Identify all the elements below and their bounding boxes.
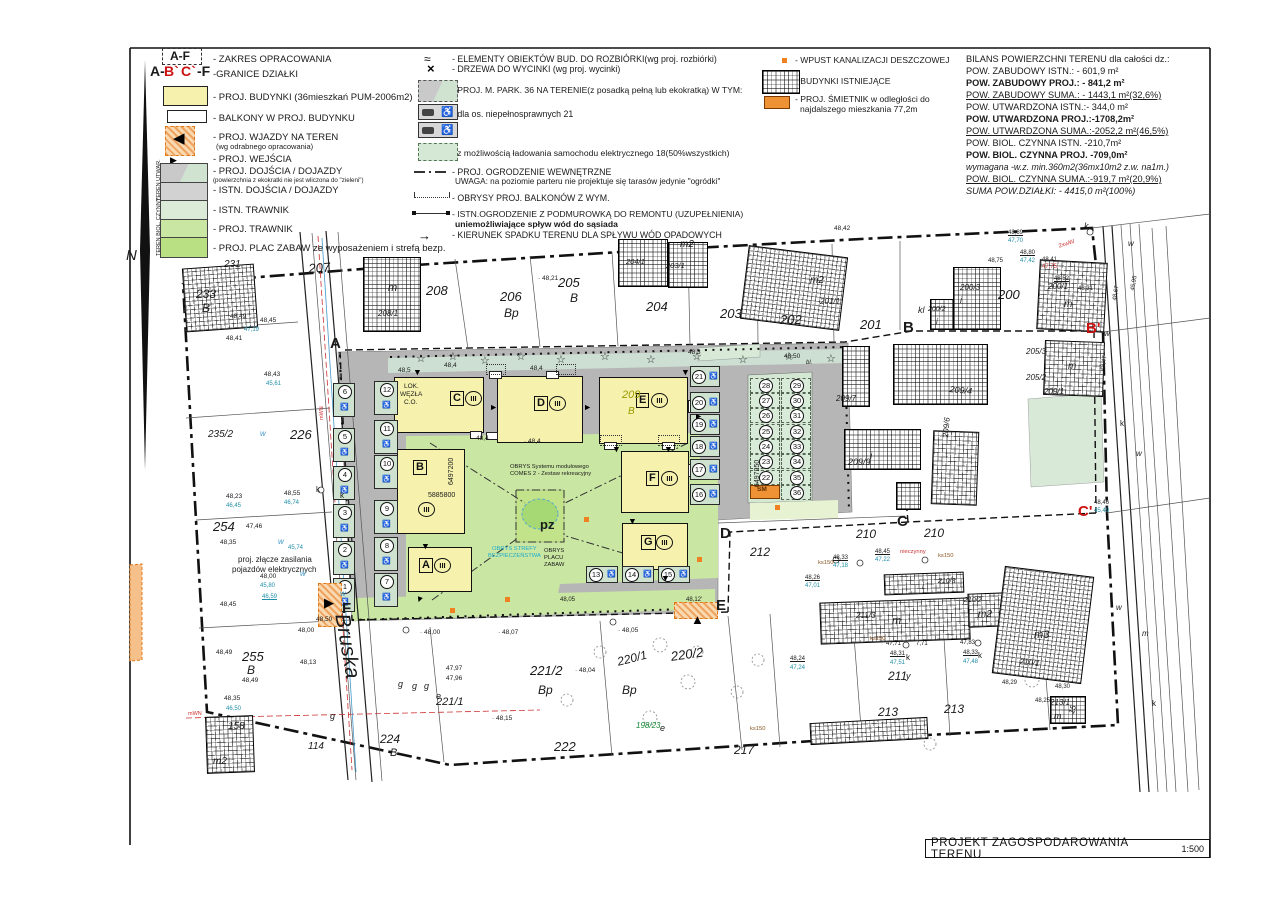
tree-star-icon: ☆ [738, 355, 748, 366]
parking-number: 10 [380, 457, 394, 471]
parking-number: 36 [790, 486, 804, 500]
map-label: m [388, 283, 397, 295]
balance-row: wymagana -w.z. min.360m2(36mx10m2 z.w. n… [966, 163, 1169, 172]
map-label: 6497250 [754, 460, 761, 487]
boundary-marker: A [330, 336, 341, 352]
tree-star-icon: ☆ [416, 354, 426, 365]
map-label: 48,5 [398, 368, 411, 375]
map-label: mWN [320, 406, 326, 420]
map-label: 48,25 [1035, 698, 1050, 704]
map-label: Bp [622, 684, 637, 697]
map-label: Bp [504, 307, 519, 320]
map-label: 221/2 [530, 664, 563, 678]
wheelchair-icon: ♿ [709, 398, 718, 406]
map-label: 48,31 [1078, 286, 1093, 292]
door-arrow-icon: ▲ [414, 594, 425, 606]
map-label: 48,46 [1094, 500, 1109, 506]
map-label: i [922, 582, 924, 591]
map-label: 205 [558, 276, 580, 290]
map-label: 48,41 [226, 336, 242, 343]
building-B-label: B [413, 460, 427, 475]
wheelchair-icon: ♿ [709, 465, 718, 473]
parking-number: 24 [759, 440, 773, 454]
map-label: m [1054, 712, 1062, 721]
map-label: m2 [810, 276, 824, 287]
map-label: 48,12' [686, 597, 702, 603]
storm-drain-icon [584, 517, 589, 522]
map-label: ks150 [870, 636, 885, 642]
map-label: B [247, 664, 255, 677]
map-label: 48,50 [316, 617, 332, 624]
map-label: y [906, 672, 911, 681]
map-label: 203/1 [666, 262, 685, 270]
map-label: 46,45 [226, 503, 241, 509]
map-label: 213/1 [1050, 699, 1070, 707]
map-label: COMES 2 - Zestaw rekreacyjny [510, 471, 591, 477]
map-label: 48,35 [224, 696, 240, 703]
map-label: m2 [213, 757, 227, 768]
building-B-floors: III [418, 502, 435, 517]
door-arrow-icon: ▲ [612, 445, 621, 454]
map-label: ks150 [750, 726, 765, 732]
map-label: 48,4 [530, 366, 543, 373]
map-label: m [892, 616, 901, 628]
map-label: 48,45 [220, 602, 236, 609]
map-label: 48,33 [833, 555, 848, 561]
map-label: 5885800 [428, 492, 455, 499]
map-label: 48,4 [444, 363, 457, 370]
map-label: SM [757, 487, 767, 494]
map-label: 7,71 [916, 641, 928, 647]
map-label: 213 [944, 703, 964, 716]
map-label: 46,50 [226, 706, 241, 712]
parking-number: 4 [338, 468, 352, 482]
building-A-floors: III [434, 558, 451, 573]
map-label: m [1068, 362, 1076, 373]
map-label: B [202, 302, 210, 315]
map-label: k [340, 492, 344, 500]
map-label: · 48,21 [538, 276, 558, 283]
map-label: 48,31 [890, 651, 905, 657]
balance-row: POW. ZABUDOWY SUMA.: - 1443,1 m²(32,6%) [966, 91, 1161, 101]
building-D-label: D [534, 396, 548, 411]
title-block: PROJEKT ZAGOSPODAROWANIA TERENU 1:500 [925, 839, 1210, 858]
legend-label: - KIERUNEK SPADKU TERENU DLA SPŁYWU WÓD … [452, 231, 722, 240]
map-label: 46,59 [262, 594, 277, 600]
map-label: 48,55 [284, 491, 300, 498]
parking-number: 26 [759, 409, 773, 423]
parking-number: 27 [759, 394, 773, 408]
map-label: 48,49 [242, 678, 258, 685]
map-label: 220/2 [670, 645, 704, 663]
map-label: g [330, 712, 335, 721]
building-G-floors: III [656, 535, 673, 550]
balance-row: POW. UTWARDZONA PROJ.:-1708,2m² [966, 115, 1134, 125]
wheelchair-icon: ♿ [382, 557, 391, 565]
wheelchair-icon: ♿ [382, 475, 391, 483]
map-label: k [1152, 700, 1156, 708]
wheelchair-icon: ♿ [340, 561, 349, 569]
map-label: 211/3 [856, 612, 875, 620]
building-G-label: G [641, 535, 656, 550]
wheelchair-icon: ♿ [709, 490, 718, 498]
map-label: m [1064, 300, 1072, 311]
legend-label: - PROJ. PLAC ZABAW ze wyposażeniem i str… [213, 244, 445, 254]
map-label: g [398, 680, 403, 689]
map-label: 48,45 [875, 549, 890, 555]
map-label: 47,51 [890, 660, 905, 666]
map-label: 48,33 [963, 650, 978, 656]
map-label: w [340, 590, 346, 598]
wheelchair-icon: ♿ [607, 570, 616, 578]
parking-number: 17 [692, 463, 706, 477]
map-label: w [300, 570, 306, 578]
slope-icon: → [418, 228, 430, 240]
parking-number: 2 [338, 543, 352, 557]
map-label: k [1120, 420, 1124, 428]
boundary-marker: B' [1086, 321, 1100, 337]
parking-number: 35 [790, 471, 804, 485]
map-label: e [660, 724, 665, 733]
balance-row: SUMA POW.DZIAŁKI: - 4415,0 m²(100%) [966, 187, 1135, 197]
boundary-marker: D [720, 526, 731, 542]
map-label: 48,47 [1100, 355, 1109, 371]
map-label: w [278, 538, 284, 546]
parking-number: 28 [759, 379, 773, 393]
site-plan-page: CIIIDIIIEIIIBIIIFIIIAIIIGIII1♿2♿3♿4♿5♿6♿… [0, 0, 1280, 905]
parking-number: 9 [380, 502, 394, 516]
wheelchair-icon: ♿ [340, 524, 349, 532]
map-label: 45,74 [288, 545, 303, 551]
map-label: · 48,4 [524, 439, 541, 446]
building-F-floors: III [661, 471, 678, 486]
map-label: B [628, 407, 635, 418]
tree-star-icon: ☆ [516, 352, 526, 363]
map-label: 47,46 [246, 524, 262, 531]
map-label: 208 [426, 284, 448, 298]
balance-row: POW. BIOL. CZYNNA PROJ. -709,0m² [966, 151, 1128, 161]
map-label: 48,45 [260, 318, 276, 325]
building-E-floors: III [651, 393, 668, 408]
map-label: g [412, 682, 417, 691]
parking-number: 18 [692, 440, 706, 454]
map-label: 202 [780, 313, 802, 327]
legend-label: uniemożliwiające spływ wód do sąsiada [455, 220, 618, 229]
wheelchair-icon: ♿ [643, 570, 652, 578]
door-arrow-icon: ▲ [413, 368, 422, 377]
map-label: mWN [188, 712, 202, 718]
map-label: · 48,04 [575, 668, 595, 675]
map-label: proj. złącze zasilania [238, 556, 312, 564]
map-label: 226 [290, 428, 312, 442]
existing-building [810, 717, 929, 745]
drawing-title: PROJEKT ZAGOSPODAROWANIA TERENU [931, 837, 1181, 861]
door-arrow-icon: ▲ [661, 574, 670, 583]
wheelchair-icon: ♿ [679, 570, 688, 578]
parking-number: 34 [790, 455, 804, 469]
map-label: 201 [860, 318, 882, 332]
door-arrow-icon: ▲ [583, 403, 592, 412]
wheelchair-icon: ♿ [340, 448, 349, 456]
parking-number: 30 [790, 394, 804, 408]
parking-number: 25 [759, 425, 773, 439]
wheelchair-icon: ♿ [382, 401, 391, 409]
door-arrow-icon: ▲ [489, 403, 498, 412]
map-label: w [1136, 450, 1142, 458]
existing-building [992, 566, 1094, 684]
building-C-label: C [450, 391, 464, 406]
entrance-arrow-icon: ▶ [324, 598, 334, 607]
map-label: 254 [213, 520, 235, 534]
boundary-marker: B [903, 320, 914, 336]
map-label: 114 [308, 742, 324, 753]
building-A-label: A [419, 558, 433, 573]
map-label: w [1116, 604, 1122, 612]
balance-row: POW. UTWARDZONA SUMA.:-2052,2 m²(46,5%) [966, 127, 1168, 137]
map-label: 204 [646, 300, 668, 314]
map-label: 47,22 [875, 557, 890, 563]
map-label: · 48,05 [618, 628, 638, 635]
tree-star-icon: ☆ [646, 355, 656, 366]
door-arrow-icon: ▲ [664, 445, 673, 454]
parking-number: 8 [380, 539, 394, 553]
map-label: bl. [806, 360, 812, 366]
map-label: 213 [878, 706, 898, 719]
entrance-gate: ▲ [674, 602, 718, 619]
tree-star-icon: ☆ [556, 355, 566, 366]
existing-building [931, 430, 980, 506]
map-label: i [960, 296, 962, 305]
parking-number: 29 [790, 379, 804, 393]
map-label: OBRYS STREFY [492, 546, 537, 552]
balance-row: POW. BIOL. CZYNNA SUMA.:-919,7 m²(20,9%) [966, 175, 1162, 185]
map-label: m3 [1034, 630, 1049, 642]
map-label: 217 [734, 744, 754, 757]
balance-row: POW. ZABUDOWY PROJ.: - 841,2 m² [966, 79, 1125, 89]
door-arrow-icon: ▲ [694, 412, 703, 421]
wheelchair-icon: ♿ [382, 520, 391, 528]
map-label: 200/1 [1048, 283, 1068, 291]
map-label: 198/23 [636, 722, 660, 730]
tree-star-icon: ☆ [600, 352, 610, 363]
map-label: 255 [242, 650, 264, 664]
existing-building [893, 344, 988, 405]
map-label: g [424, 682, 429, 691]
map-label: 47,48 [963, 659, 978, 665]
map-label: 47,19 [244, 327, 259, 333]
map-label: nieczynny [900, 549, 926, 555]
map-label: 210 [924, 527, 944, 540]
wheelchair-icon: ♿ [382, 593, 391, 601]
map-label: 48,30 [1055, 684, 1070, 690]
storm-drain-icon [505, 597, 510, 602]
map-label: 220/1 [616, 649, 648, 668]
map-label: B [390, 748, 397, 760]
building-E [599, 377, 688, 444]
map-label: 207 [308, 260, 331, 275]
map-label: 210 [856, 528, 876, 541]
map-label: m2 [978, 610, 992, 621]
map-label: 45,49 [1094, 508, 1109, 514]
map-label: 48,49 [216, 650, 232, 657]
map-label: 48,23 [226, 494, 242, 501]
map-label: 203 [720, 307, 742, 321]
map-label: 200/2 [928, 306, 946, 313]
map-label: kl [918, 306, 925, 315]
map-label: B [570, 292, 578, 305]
parking-number: 3 [338, 506, 352, 520]
door-arrow-icon: ▲ [628, 517, 637, 526]
parking-number: 32 [790, 425, 804, 439]
legend-swatch [160, 219, 208, 240]
map-label: 48,05 [560, 597, 575, 603]
map-label: 48,24 [790, 656, 805, 662]
boundary-marker: C [897, 514, 908, 530]
boundary-marker: E [716, 598, 726, 614]
parking-number: 13 [589, 568, 603, 582]
map-label: 48,29 [1002, 680, 1017, 686]
map-label: w [260, 430, 266, 438]
map-label: 45,95 [1130, 275, 1139, 291]
balance-row: POW. UTWARDZONA ISTN.:- 344,0 m² [966, 103, 1128, 113]
map-label: pz [540, 518, 554, 532]
tree-star-icon: ☆ [480, 356, 490, 367]
map-label: 231 [224, 260, 241, 271]
map-label: 48,67 [1112, 285, 1121, 301]
parking-number: 20 [692, 396, 706, 410]
map-label: WĘZŁA [400, 392, 422, 399]
entrance-arrow-icon: ▲ [691, 615, 704, 624]
map-label: 209/6 [942, 417, 952, 438]
map-label: 45,80 [260, 583, 275, 589]
map-label: 209/9 [848, 458, 871, 467]
door-arrow-icon: ▲ [681, 368, 690, 377]
map-label: · 48,15 [492, 716, 512, 723]
area-balance-panel: BILANS POWIERZCHNI TERENU dla całości dz… [0, 0, 1280, 220]
map-label: 47,71 [886, 641, 901, 647]
map-label: · 48,00 [420, 630, 440, 637]
wheelchair-icon: ♿ [709, 442, 718, 450]
drawing-scale: 1:500 [1181, 844, 1204, 854]
map-label: 48,52 [1054, 276, 1069, 282]
map-label: 48,35 [220, 540, 236, 547]
map-label: 222 [554, 740, 576, 754]
map-label: k [316, 486, 320, 494]
parking-number: 12 [380, 383, 394, 397]
map-label: 158 [228, 722, 245, 733]
legend-label: - PROJ. TRAWNIK [213, 225, 293, 235]
map-label: 233 [196, 288, 216, 301]
map-label: 45,61 [266, 381, 281, 387]
map-label: w [1104, 330, 1110, 338]
map-label: 48,4 [476, 436, 489, 443]
map-label: C.O. [404, 400, 417, 407]
map-label: 209/7 [836, 395, 856, 403]
map-label: · 48,07 [498, 630, 518, 637]
map-label: 48,3 [688, 350, 701, 357]
map-label: 48,00 [260, 574, 276, 581]
building-C-floors: III [465, 391, 482, 406]
map-label: 200 [998, 288, 1020, 302]
map-label: Bp [538, 684, 553, 697]
map-label: 210/3 [938, 578, 956, 585]
parking-number: 14 [625, 568, 639, 582]
map-label: 48,49 [230, 314, 246, 321]
map-label: 235/2 [208, 430, 233, 441]
parking-number: 33 [790, 440, 804, 454]
parking-number: 5 [338, 430, 352, 444]
map-label: 212 [750, 546, 770, 559]
map-label: 209 [622, 390, 640, 402]
map-label: Bruska [330, 612, 363, 680]
map-label: i [870, 452, 872, 463]
parking-number: 31 [790, 409, 804, 423]
map-label: k [978, 652, 982, 660]
map-label: 210/2 [964, 597, 982, 604]
existing-building [896, 482, 921, 510]
map-label: 48,13 [300, 660, 316, 667]
storm-drain-icon [775, 505, 780, 510]
map-label: 47,97 [446, 666, 462, 673]
map-label: k [906, 654, 910, 662]
map-label: ks150 [818, 560, 833, 566]
map-label: OBRYS [544, 548, 564, 554]
parking-number: 7 [380, 575, 394, 589]
tree-star-icon: ☆ [826, 354, 836, 365]
wheelchair-icon: ♿ [340, 403, 349, 411]
wheelchair-icon: ♿ [709, 420, 718, 428]
building-F-label: F [646, 471, 659, 486]
map-label: 211 [888, 670, 907, 683]
map-label: OBRYS Systemu modułowego [510, 464, 589, 470]
map-label: 201/1 [820, 298, 840, 306]
map-label: 209/1 [1044, 388, 1064, 396]
balance-row: POW. BIOL. CZYNNA ISTN. -210,7m² [966, 139, 1121, 149]
map-label: 48,00 [298, 628, 314, 635]
map-label: 48,43 [264, 372, 280, 379]
legend-swatch [160, 237, 208, 258]
map-label: 48,50 [784, 354, 800, 361]
door-arrow-icon: ▲ [421, 542, 430, 551]
wheelchair-icon: ♿ [709, 372, 718, 380]
map-label: m [1142, 630, 1149, 638]
map-label: PLACU [544, 555, 563, 561]
boundary-marker: C' [1078, 504, 1092, 520]
map-label: 205/3 [1026, 348, 1046, 356]
map-label: i [936, 318, 938, 326]
parking-number: 11 [380, 422, 394, 436]
parking-number: 6 [338, 385, 352, 399]
building-D-floors: III [549, 396, 566, 411]
map-label: e [436, 692, 441, 701]
map-label: 200/3 [960, 284, 980, 292]
storm-drain-icon [450, 608, 455, 613]
parking-number: 16 [692, 488, 706, 502]
balance-row: BILANS POWIERZCHNI TERENU dla całości dz… [966, 55, 1170, 65]
parking-number: 21 [692, 370, 706, 384]
map-label: 47,75 [1042, 264, 1057, 270]
map-label: ks150 [938, 553, 953, 559]
map-label: 47,18 [833, 563, 848, 569]
map-label: BEZPIECZEŃSTWA [488, 553, 541, 559]
map-label: 48,26 [805, 575, 820, 581]
map-label: 47,96 [446, 676, 462, 683]
map-label: 47,83 [960, 640, 975, 646]
storm-drain-icon [697, 557, 702, 562]
map-label: LOK. [404, 384, 419, 391]
map-label: 205/2 [1026, 374, 1046, 382]
map-label: 206 [500, 290, 522, 304]
